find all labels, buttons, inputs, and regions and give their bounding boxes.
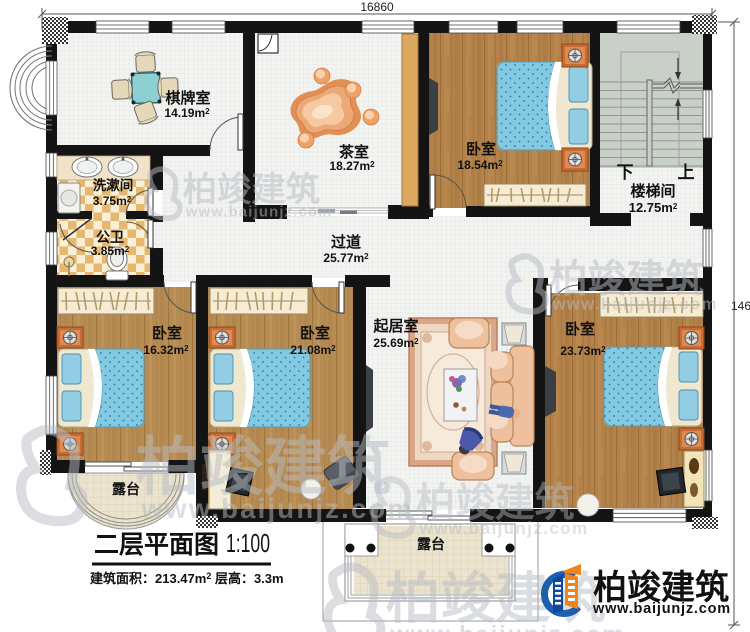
svg-text:www.baijunjz.com: www.baijunjz.com	[592, 601, 731, 617]
svg-text:18.27m2: 18.27m2	[329, 159, 375, 173]
svg-text:23.73m2: 23.73m2	[560, 344, 606, 358]
svg-text:25.69m2: 25.69m2	[373, 336, 419, 350]
svg-text:下: 下	[617, 163, 634, 182]
svg-text:上: 上	[678, 163, 695, 182]
svg-text:21.08m2: 21.08m2	[290, 343, 336, 357]
svg-text:卧室: 卧室	[152, 324, 182, 342]
svg-text:楼梯间: 楼梯间	[630, 182, 675, 200]
svg-text:露台: 露台	[417, 536, 445, 552]
svg-text:起居室: 起居室	[372, 317, 418, 335]
svg-text:18.54m2: 18.54m2	[457, 158, 503, 172]
svg-text:公卫: 公卫	[96, 229, 124, 245]
svg-text:1:100: 1:100	[226, 528, 270, 558]
svg-text:www.baijunjz.com: www.baijunjz.com	[418, 519, 588, 538]
svg-text:建筑面积：213.47m2 层高：3.3m: 建筑面积：213.47m2 层高：3.3m	[90, 571, 284, 586]
svg-text:卧室: 卧室	[466, 140, 496, 158]
svg-text:16.32m2: 16.32m2	[143, 343, 189, 357]
svg-text:25.77m2: 25.77m2	[323, 251, 369, 265]
svg-text:3.75m2: 3.75m2	[93, 194, 132, 208]
svg-text:过道: 过道	[331, 233, 361, 251]
svg-text:棋牌室: 棋牌室	[165, 89, 210, 107]
svg-text:www.baijunjz.com: www.baijunjz.com	[551, 295, 717, 314]
svg-text:洗漱间: 洗漱间	[93, 177, 134, 193]
svg-text:卧室: 卧室	[565, 320, 595, 338]
svg-text:www.baijunjz.com: www.baijunjz.com	[185, 204, 333, 220]
svg-text:柏竣建筑: 柏竣建筑	[183, 170, 320, 209]
svg-text:二层平面图: 二层平面图	[94, 531, 219, 559]
svg-text:14.19m2: 14.19m2	[164, 106, 210, 120]
svg-text:www.baijunjz.com: www.baijunjz.com	[390, 622, 626, 632]
svg-text:16860: 16860	[360, 0, 394, 14]
svg-text:3.85m2: 3.85m2	[91, 244, 130, 258]
svg-text:12.75m2: 12.75m2	[629, 200, 678, 215]
svg-text:卧室: 卧室	[300, 324, 330, 342]
svg-text:14620: 14620	[731, 299, 750, 313]
